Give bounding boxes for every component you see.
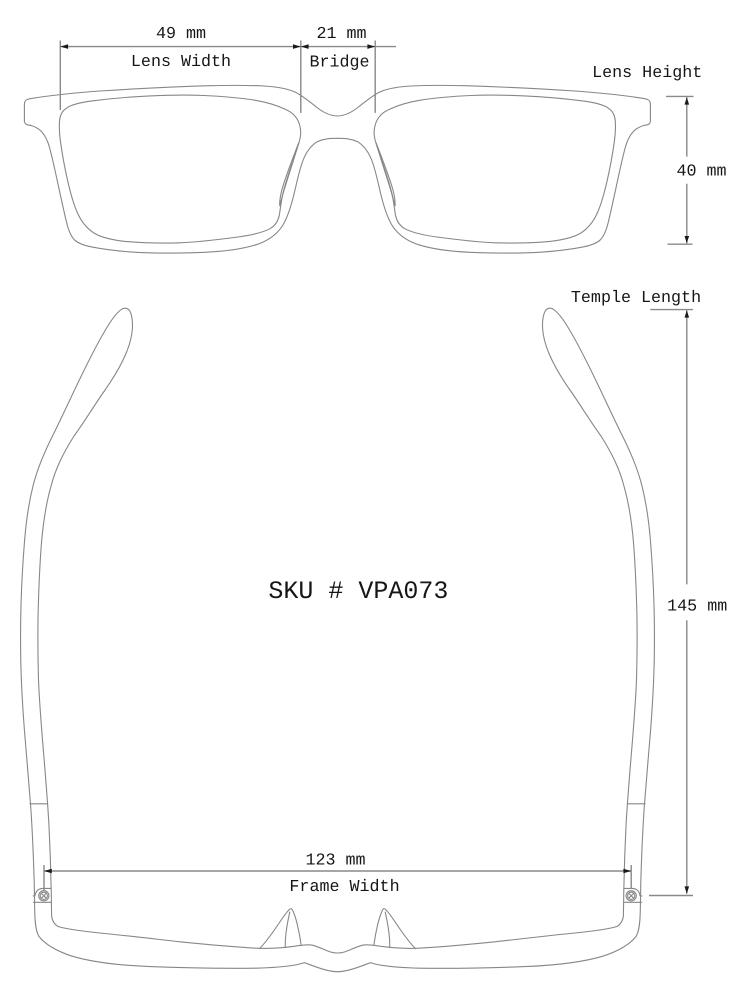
svg-text:49 mm: 49 mm	[156, 25, 206, 44]
svg-text:Lens Height: Lens Height	[592, 64, 702, 83]
svg-text:Bridge: Bridge	[309, 54, 369, 73]
svg-text:145 mm: 145 mm	[667, 597, 727, 616]
svg-text:Lens Width: Lens Width	[131, 53, 231, 72]
svg-text:21 mm: 21 mm	[316, 25, 366, 44]
svg-text:Frame Width: Frame Width	[289, 878, 399, 897]
svg-text:123 mm: 123 mm	[305, 852, 365, 871]
svg-text:SKU # VPA073: SKU # VPA073	[268, 577, 448, 606]
svg-text:40 mm: 40 mm	[676, 162, 726, 181]
svg-text:Temple Length: Temple Length	[571, 289, 701, 308]
